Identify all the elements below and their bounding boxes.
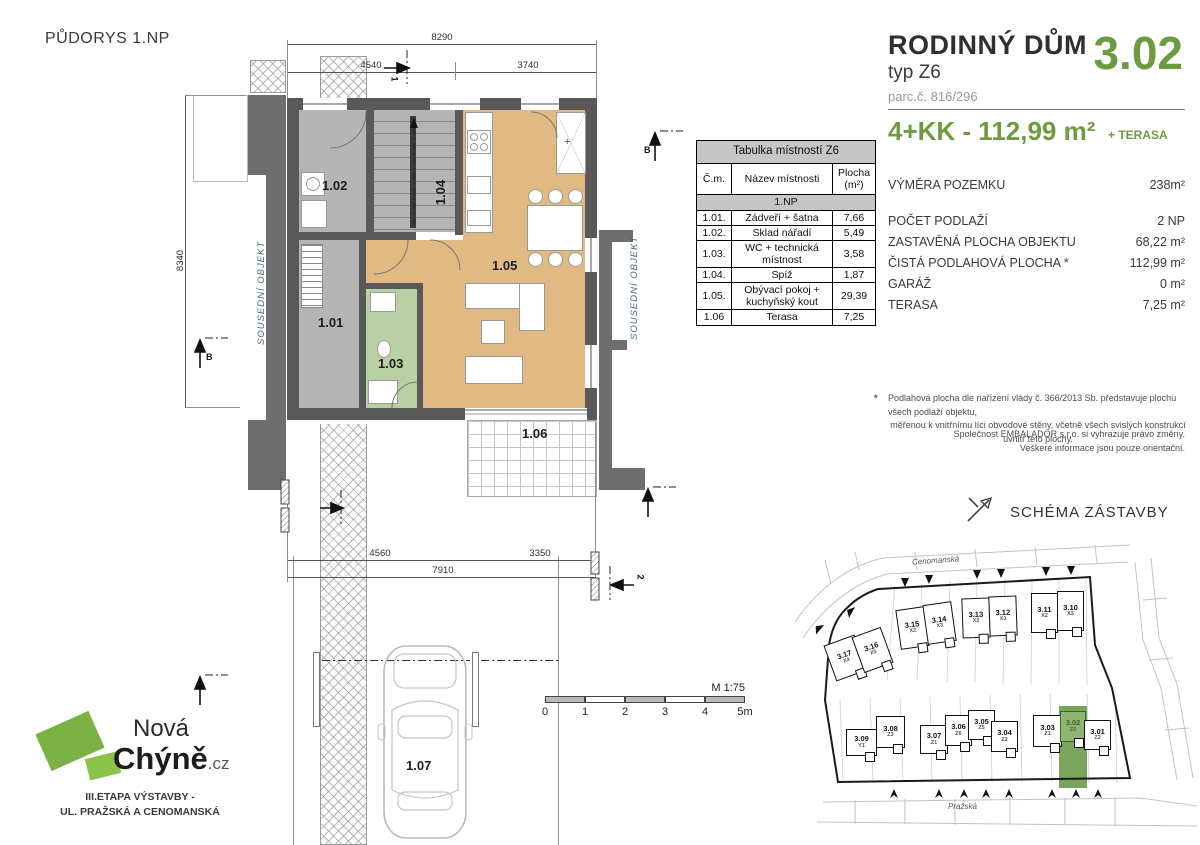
scale-tick: 2 xyxy=(622,706,628,718)
house-3-10: 3.10 X3 xyxy=(1057,591,1084,631)
logo-tagline-1: III.ETAPA VÝSTAVBY - xyxy=(35,791,245,803)
house-type: Z5 xyxy=(978,725,984,732)
house-label: 3.06 xyxy=(951,723,966,731)
house-type: X2 xyxy=(1041,613,1048,620)
cell-area: 5,49 xyxy=(833,226,876,241)
street-label-bottom: Pražská xyxy=(948,802,977,811)
col-header-area-l1: Plocha xyxy=(835,167,873,179)
kitchen-cabinet xyxy=(467,210,491,226)
scale-tick: 4 xyxy=(702,706,708,718)
window-top-2 xyxy=(521,98,559,110)
neighbor-stub-right-top xyxy=(599,230,633,242)
house-3-14: 3.14 X3 xyxy=(922,601,956,645)
scale-seg xyxy=(545,696,585,703)
house-label: 3.08 xyxy=(883,725,898,733)
burner-3 xyxy=(470,143,478,151)
fridge-plus-icon: + xyxy=(564,136,570,148)
cell-area: 1,87 xyxy=(833,268,876,283)
wc-sink xyxy=(370,292,396,312)
dim-ext-3 xyxy=(455,62,456,80)
spec-row: POČET PODLAŽÍ 2 NP xyxy=(888,214,1185,228)
dim-bottom-right: 3350 xyxy=(529,548,550,559)
spec-label: POČET PODLAŽÍ xyxy=(888,214,988,228)
chair-6 xyxy=(568,252,583,267)
house-3-07: 3.07 Z1 xyxy=(920,725,948,754)
tech-unit xyxy=(368,380,398,404)
house-type: Z6 xyxy=(1070,727,1076,734)
page-title: PŮDORYS 1.NP xyxy=(45,30,170,48)
house-3-04: 3.04 Z2 xyxy=(991,721,1018,752)
house-label: 3.09 xyxy=(854,735,869,743)
terrace-slider-opening xyxy=(465,408,587,420)
section-marker-1: 1 xyxy=(390,76,400,81)
cell-name: Spíž xyxy=(732,268,833,283)
terrace-note: + TERASA xyxy=(1108,128,1168,142)
house-type: Y1 xyxy=(858,743,865,750)
label-room-101: 1.01 xyxy=(318,315,343,330)
house-3-01: 3.01 Z2 xyxy=(1084,720,1111,750)
building-type-title: RODINNÝ DŮM xyxy=(888,30,1087,61)
cell-num: 1.02. xyxy=(697,226,732,241)
rooms-table-title: Tabulka místností Z6 xyxy=(697,141,876,164)
footnote-line1: Podlahová plocha dle nařízení vlády č. 3… xyxy=(888,392,1188,419)
col-header-area: Plocha (m²) xyxy=(833,164,876,195)
scale-seg xyxy=(705,696,745,703)
house-type: X4 xyxy=(842,657,851,665)
spec-value: 7,25 m² xyxy=(1143,298,1185,312)
cell-num: 1.06 xyxy=(697,310,732,325)
table-row: 1.05. Obývací pokoj + kuchyňský kout 29,… xyxy=(697,283,876,310)
parcel-number: parc.č. 816/296 xyxy=(888,89,978,104)
coffee-table xyxy=(481,320,505,344)
spec-value: 2 NP xyxy=(1157,214,1185,228)
scale-tick: 5m xyxy=(737,706,752,718)
house-type: X3 xyxy=(1000,616,1007,623)
chair-1 xyxy=(528,189,543,204)
dim-top-sub-line xyxy=(287,72,597,73)
scale-tick: 1 xyxy=(582,706,588,718)
house-3-02-highlighted: 3.02 Z6 xyxy=(1060,711,1086,742)
table-row: 1.03. WC + technická místnost 3,58 xyxy=(697,241,876,268)
scale-seg xyxy=(665,696,705,703)
cell-num: 1.05. xyxy=(697,283,732,310)
fence-line xyxy=(481,660,558,661)
house-3-13: 3.13 X2 xyxy=(961,598,990,639)
type-label: typ Z6 xyxy=(888,62,941,84)
house-label: 3.07 xyxy=(927,732,942,740)
stair-stringer xyxy=(410,116,416,228)
cell-name: Obývací pokoj + kuchyňský kout xyxy=(732,283,833,310)
wardrobe xyxy=(301,244,323,308)
house-3-12: 3.12 X3 xyxy=(988,596,1017,637)
house-3-08: 3.08 Z3 xyxy=(876,716,905,748)
brand-suffix: .cz xyxy=(208,754,230,773)
spec-label: GARÁŽ xyxy=(888,277,931,291)
section-marker-b-left: B xyxy=(206,352,213,362)
dim-ext-1 xyxy=(287,40,288,98)
cell-name: Terasa xyxy=(732,310,833,325)
scale-tick: 0 xyxy=(542,706,548,718)
spec-row: GARÁŽ 0 m² xyxy=(888,277,1185,291)
house-label: 3.01 xyxy=(1090,728,1105,736)
house-label: 3.11 xyxy=(1037,606,1051,614)
spec-row: ČISTÁ PODLAHOVÁ PLOCHA * 112,99 m² xyxy=(888,256,1185,270)
dim-top-left: 4540 xyxy=(360,60,381,71)
dim-bottom-sub-line xyxy=(287,560,595,561)
house-label: 3.03 xyxy=(1040,724,1055,732)
fridge-unit xyxy=(556,112,586,174)
label-room-106: 1.06 xyxy=(522,426,547,441)
unit-number: 3.02 xyxy=(1085,26,1183,80)
cell-num: 1.01. xyxy=(697,211,732,226)
brick-walkway xyxy=(320,424,367,845)
dim-left-total: 8340 xyxy=(175,250,186,271)
north-arrow-icon xyxy=(962,492,996,526)
dim-bottom-total: 7910 xyxy=(432,565,453,576)
house-type: Z1 xyxy=(1044,731,1050,738)
scale-seg xyxy=(625,696,665,703)
neighbor-chimney xyxy=(250,60,286,93)
rooms-table: Tabulka místností Z6 Č.m. Název místnost… xyxy=(696,140,876,326)
spec-label: VÝMĚRA POZEMKU xyxy=(888,178,1005,192)
cell-num: 1.03. xyxy=(697,241,732,268)
house-type: Z3 xyxy=(887,732,893,739)
footnote-marker: * xyxy=(874,392,878,406)
spec-label: TERASA xyxy=(888,298,938,312)
dim-ext-4 xyxy=(185,95,245,96)
section-marker-b-right: B xyxy=(644,145,651,155)
dim-top-total: 8290 xyxy=(431,32,452,43)
neighbor-label-right: SOUSEDNÍ OBJEKT xyxy=(629,236,640,340)
header-divider xyxy=(888,109,1185,110)
dim-top-total-line xyxy=(287,44,597,45)
burner-1 xyxy=(470,133,478,141)
dim-bottom-left: 4560 xyxy=(369,548,390,559)
house-type: X2 xyxy=(909,628,917,635)
window-right-1 xyxy=(585,238,597,272)
sofa-second xyxy=(465,356,523,384)
table-row: 1.06 Terasa 7,25 xyxy=(697,310,876,325)
label-room-103: 1.03 xyxy=(378,356,403,371)
disclaimer-line1: Společnost EMBALADOR s.r.o. si vyhrazuje… xyxy=(888,428,1185,442)
cell-name: Sklad nářadí xyxy=(732,226,833,241)
spec-label: ČISTÁ PODLAHOVÁ PLOCHA * xyxy=(888,256,1069,270)
house-type: Z1 xyxy=(931,740,937,747)
neighbor-stub-right-bottom xyxy=(599,468,645,490)
gate-post-left xyxy=(313,652,320,727)
wall-102-104 xyxy=(366,110,374,235)
col-header-name: Název místnosti xyxy=(732,164,833,195)
spec-value: 238m² xyxy=(1150,178,1185,192)
label-room-102: 1.02 xyxy=(322,178,347,193)
disclaimer: Společnost EMBALADOR s.r.o. si vyhrazuje… xyxy=(888,428,1185,455)
label-room-104: 1.04 xyxy=(433,180,448,205)
brand-name: Chýně xyxy=(113,741,208,776)
table-row: 1.01. Zádveří + šatna 7,66 xyxy=(697,211,876,226)
dim-ext-5 xyxy=(185,407,240,408)
section-marker-2: 2 xyxy=(636,574,646,579)
site-plan xyxy=(795,540,1200,845)
table-section-1np: 1.NP xyxy=(697,195,876,211)
wall-103-right xyxy=(417,283,423,408)
dim-ext-2 xyxy=(596,40,597,98)
house-type: Z2 xyxy=(1094,735,1100,742)
cell-area: 3,58 xyxy=(833,241,876,268)
cell-name: WC + technická místnost xyxy=(732,241,833,268)
plot-line-left xyxy=(293,556,294,845)
col-header-num: Č.m. xyxy=(697,164,732,195)
house-type: X5 xyxy=(869,649,878,657)
table-row: 1.02. Sklad nářadí 5,49 xyxy=(697,226,876,241)
house-label: 3.05 xyxy=(974,718,989,726)
house-type: X3 xyxy=(936,623,944,630)
dining-table xyxy=(527,205,583,251)
house-type: X2 xyxy=(973,618,980,625)
burner-2 xyxy=(480,133,488,141)
kitchen-sink xyxy=(467,176,491,194)
spec-row: VÝMĚRA POZEMKU 238m² xyxy=(888,178,1185,192)
layout-area: 4+KK - 112,99 m² xyxy=(888,116,1095,147)
neighbor-label-left: SOUSEDNÍ OBJEKT xyxy=(256,241,267,345)
washing-machine-drum xyxy=(306,177,320,191)
col-header-area-l2: (m²) xyxy=(835,179,873,191)
chair-2 xyxy=(548,189,563,204)
window-top-1 xyxy=(303,98,347,110)
house-type: Z6 xyxy=(955,731,961,738)
scale-seg xyxy=(585,696,625,703)
cell-name: Zádveří + šatna xyxy=(732,211,833,226)
cell-area: 7,66 xyxy=(833,211,876,226)
logo-tagline-2: UL. PRAŽSKÁ A CENOMANSKÁ xyxy=(35,806,245,818)
house-3-11: 3.11 X2 xyxy=(1031,593,1058,633)
house-label: 3.10 xyxy=(1063,604,1078,612)
house-type: Z2 xyxy=(1001,737,1007,744)
cell-area: 29,39 xyxy=(833,283,876,310)
wall-left xyxy=(287,98,299,420)
floor-plan-sheet: PŮDORYS 1.NP SOUSEDNÍ OBJEKT SOUSEDNÍ OB… xyxy=(0,0,1200,845)
entry-door-opening xyxy=(430,98,480,110)
label-room-105: 1.05 xyxy=(492,258,517,273)
neighbor-wall-right xyxy=(599,230,612,490)
cell-area: 7,25 xyxy=(833,310,876,325)
house-3-09: 3.09 Y1 xyxy=(846,729,877,756)
chair-4 xyxy=(528,252,543,267)
wall-104-kitchen xyxy=(455,110,463,235)
wall-stairs-hall xyxy=(366,232,416,240)
house-label: 3.04 xyxy=(997,729,1012,737)
house-3-03: 3.03 Z1 xyxy=(1033,715,1062,747)
dim-ext-7 xyxy=(595,422,596,582)
neighbor-outline-left xyxy=(193,95,248,182)
spec-label: ZASTAVĚNÁ PLOCHA OBJEKTU xyxy=(888,235,1076,249)
house-label: 3.02 xyxy=(1066,719,1081,727)
car-icon xyxy=(372,640,478,845)
neighbor-wall-left-bottom xyxy=(248,420,286,490)
disclaimer-line2: Veškeré informace jsou pouze orientační. xyxy=(888,442,1185,456)
spec-value: 112,99 m² xyxy=(1130,256,1185,270)
spec-row: TERASA 7,25 m² xyxy=(888,298,1185,312)
brand-line1: Nová xyxy=(133,715,189,743)
chair-3 xyxy=(568,189,583,204)
spec-row: ZASTAVĚNÁ PLOCHA OBJEKTU 68,22 m² xyxy=(888,235,1185,249)
table-row: 1.04. Spíž 1,87 xyxy=(697,268,876,283)
dim-top-right: 3740 xyxy=(517,60,538,71)
scale-label: M 1:75 xyxy=(711,682,745,694)
spec-value: 0 m² xyxy=(1160,277,1185,291)
scale-bar: M 1:75 0 1 2 3 4 5m xyxy=(545,682,745,722)
storage-cabinet xyxy=(301,200,327,228)
dim-bottom-total-line xyxy=(287,577,595,578)
logo[interactable]: Nová Chýně.cz III.ETAPA VÝSTAVBY - UL. P… xyxy=(35,705,245,830)
window-right-2 xyxy=(585,345,597,388)
cell-num: 1.04. xyxy=(697,268,732,283)
sofa-chaise xyxy=(519,283,545,331)
burner-4 xyxy=(480,143,488,151)
brand-line2: Chýně.cz xyxy=(113,741,229,777)
scale-tick: 3 xyxy=(662,706,668,718)
wall-101-hall xyxy=(359,240,366,408)
spec-value: 68,22 m² xyxy=(1136,235,1185,249)
neighbor-stub-right-mid xyxy=(599,340,627,350)
chair-5 xyxy=(548,252,563,267)
house-type: X3 xyxy=(1067,611,1074,618)
dim-ext-6 xyxy=(287,492,288,582)
schema-title: SCHÉMA ZÁSTAVBY xyxy=(1010,504,1169,521)
wall-102-101 xyxy=(287,232,374,240)
